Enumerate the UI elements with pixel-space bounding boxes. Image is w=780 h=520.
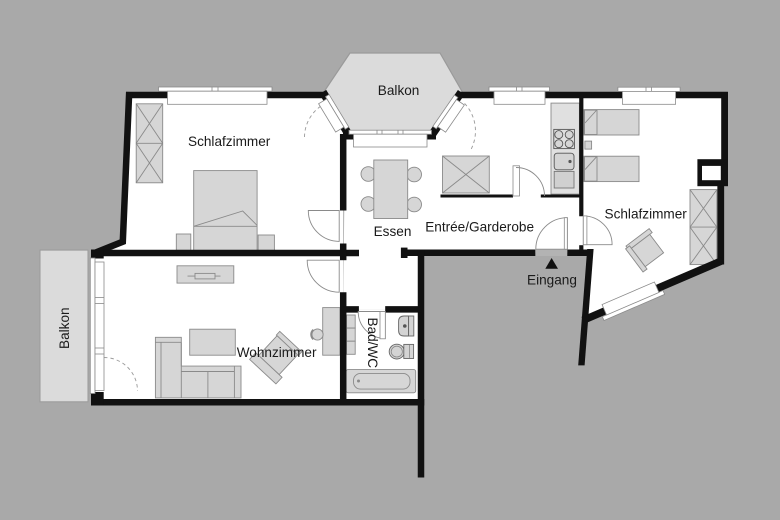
svg-text:Balkon: Balkon [57,307,72,349]
svg-text:Essen: Essen [374,224,412,239]
svg-text:Eingang: Eingang [527,272,577,287]
svg-text:Schlafzimmer: Schlafzimmer [605,206,688,221]
svg-text:Entrée/Garderobe: Entrée/Garderobe [425,220,534,235]
svg-text:Bad/WC: Bad/WC [365,318,380,369]
svg-text:Wohnzimmer: Wohnzimmer [237,345,317,360]
svg-text:Balkon: Balkon [378,83,420,98]
svg-text:Schlafzimmer: Schlafzimmer [188,134,271,149]
